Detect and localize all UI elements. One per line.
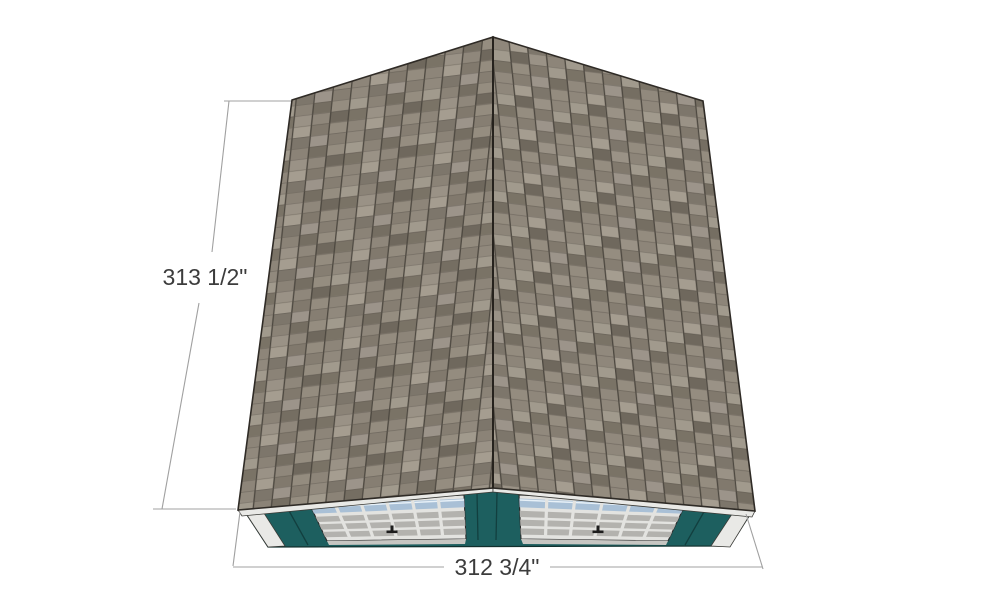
roof	[238, 37, 755, 517]
roof-plane-right	[493, 37, 755, 511]
shed-roof-render: 313 1/2" 312 3/4"	[0, 0, 1005, 601]
witness-line	[746, 514, 763, 569]
dimension-line	[212, 101, 229, 252]
model-viewport: 313 1/2" 312 3/4"	[0, 0, 1005, 601]
roof-plane-left	[238, 37, 493, 510]
witness-line	[233, 512, 240, 566]
dimension-line	[162, 303, 199, 509]
dimension-label-width: 312 3/4"	[455, 554, 540, 580]
dimension-label-height: 313 1/2"	[163, 264, 248, 290]
